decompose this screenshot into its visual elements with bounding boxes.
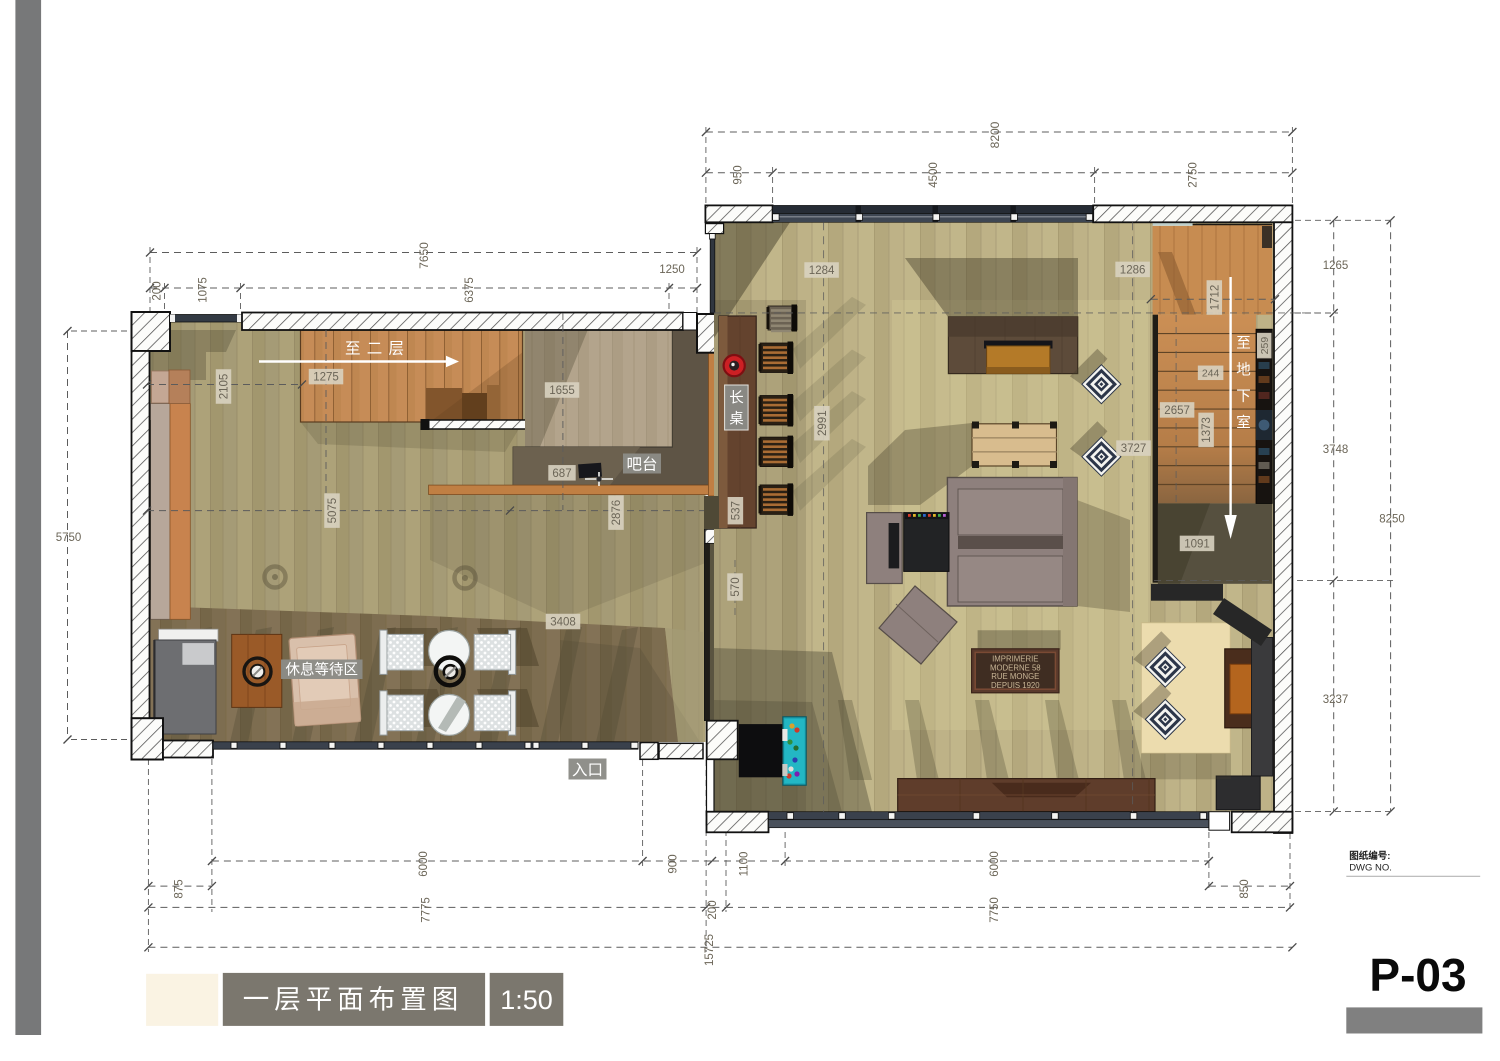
svg-text:3408: 3408 (550, 617, 576, 629)
svg-text:6000: 6000 (418, 851, 430, 877)
svg-text:1075: 1075 (198, 277, 210, 303)
svg-text:室: 室 (1236, 415, 1251, 432)
svg-text:DEPUIS 1920: DEPUIS 1920 (991, 681, 1040, 690)
svg-text:1373: 1373 (1201, 417, 1213, 443)
svg-text:687: 687 (552, 468, 571, 480)
svg-text:2991: 2991 (817, 410, 829, 436)
svg-text:7775: 7775 (421, 897, 433, 923)
svg-text:吧台: 吧台 (626, 456, 657, 474)
svg-text:259: 259 (1259, 337, 1271, 355)
svg-text:900: 900 (668, 854, 680, 873)
svg-text:入口: 入口 (572, 762, 603, 779)
svg-text:图纸编号:: 图纸编号: (1349, 850, 1390, 862)
svg-text:6375: 6375 (464, 277, 476, 303)
svg-text:桌: 桌 (729, 411, 744, 428)
svg-text:长: 长 (729, 390, 744, 407)
svg-text:下: 下 (1236, 389, 1251, 405)
svg-text:至: 至 (1236, 336, 1251, 352)
svg-text:至 二 层: 至 二 层 (345, 341, 405, 358)
svg-text:RUE MONGE: RUE MONGE (991, 672, 1039, 681)
svg-text:1284: 1284 (809, 265, 835, 277)
svg-text:200: 200 (707, 900, 719, 919)
svg-text:570: 570 (730, 577, 742, 596)
svg-text:537: 537 (730, 501, 742, 520)
svg-text:5075: 5075 (327, 498, 339, 524)
svg-text:8200: 8200 (988, 121, 1002, 148)
svg-text:7650: 7650 (417, 242, 431, 269)
svg-text:1712: 1712 (1209, 285, 1221, 311)
svg-text:7750: 7750 (989, 897, 1001, 923)
svg-text:一层平面布置图: 一层平面布置图 (243, 985, 464, 1015)
svg-text:P-03: P-03 (1369, 949, 1466, 1001)
svg-text:850: 850 (1239, 879, 1251, 898)
svg-text:3748: 3748 (1323, 444, 1349, 456)
svg-text:3237: 3237 (1323, 694, 1349, 706)
svg-text:1655: 1655 (549, 385, 575, 397)
svg-text:1275: 1275 (313, 372, 339, 384)
svg-text:2657: 2657 (1164, 405, 1190, 417)
svg-text:244: 244 (1202, 367, 1220, 379)
svg-text:1286: 1286 (1120, 264, 1146, 276)
svg-text:2876: 2876 (611, 500, 623, 526)
svg-text:休息等待区: 休息等待区 (286, 661, 359, 679)
svg-text:5750: 5750 (56, 532, 82, 544)
svg-text:1100: 1100 (739, 852, 751, 877)
svg-text:3727: 3727 (1121, 443, 1147, 455)
svg-text:6000: 6000 (989, 851, 1001, 877)
svg-text:2750: 2750 (1188, 162, 1200, 188)
svg-text:875: 875 (173, 879, 185, 898)
svg-text:8250: 8250 (1379, 514, 1405, 526)
svg-text:DWG NO.: DWG NO. (1349, 863, 1392, 874)
svg-text:MODERNE 58: MODERNE 58 (990, 663, 1041, 672)
svg-text:地: 地 (1236, 362, 1251, 379)
svg-text:IMPRIMERIE: IMPRIMERIE (992, 655, 1038, 664)
svg-text:200: 200 (152, 281, 164, 300)
svg-text:4500: 4500 (928, 162, 940, 188)
svg-text:1250: 1250 (659, 264, 685, 276)
svg-text:1:50: 1:50 (500, 985, 553, 1015)
svg-text:2105: 2105 (219, 374, 231, 400)
svg-text:1265: 1265 (1323, 260, 1349, 272)
svg-text:950: 950 (733, 165, 745, 184)
svg-text:1091: 1091 (1184, 538, 1210, 550)
